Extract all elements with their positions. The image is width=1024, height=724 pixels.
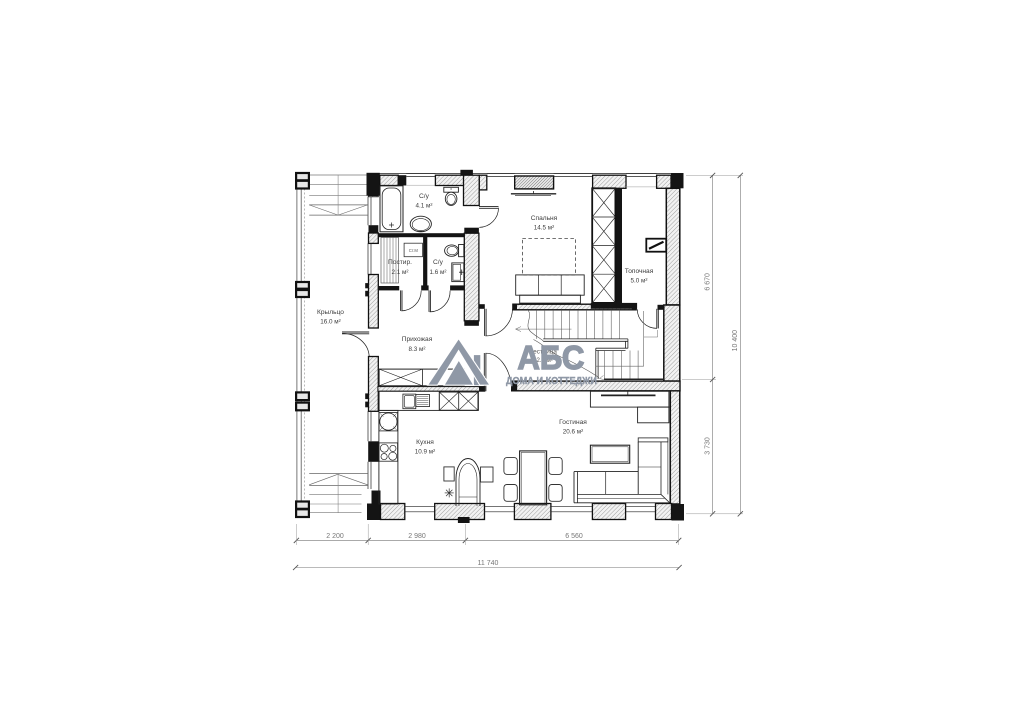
svg-text:Спальня: Спальня: [531, 215, 558, 222]
svg-text:АБС: АБС: [517, 339, 584, 376]
svg-text:4.1 м²: 4.1 м²: [416, 203, 433, 210]
svg-text:ДОМА И КОТТЕДЖИ: ДОМА И КОТТЕДЖИ: [506, 375, 597, 387]
svg-text:1.6 м²: 1.6 м²: [430, 269, 447, 276]
svg-text:Гостиная: Гостиная: [559, 419, 587, 426]
svg-text:Кухня: Кухня: [416, 439, 434, 446]
svg-text:С/у: С/у: [433, 259, 444, 266]
svg-text:5.0 м²: 5.0 м²: [631, 278, 648, 285]
svg-text:Топочная: Топочная: [625, 268, 654, 275]
svg-text:Прихожая: Прихожая: [402, 336, 433, 343]
svg-text:10 400: 10 400: [732, 330, 739, 352]
svg-text:С/у: С/у: [419, 193, 430, 200]
svg-text:Ст.М: Ст.М: [409, 248, 419, 253]
svg-text:2 200: 2 200: [326, 533, 344, 540]
svg-text:14.5 м²: 14.5 м²: [534, 225, 554, 232]
svg-text:6 560: 6 560: [565, 533, 583, 540]
svg-text:2.1 м²: 2.1 м²: [392, 269, 409, 276]
svg-text:10.9 м²: 10.9 м²: [415, 449, 435, 456]
svg-text:2 980: 2 980: [408, 533, 426, 540]
svg-text:16.0 м²: 16.0 м²: [320, 319, 340, 326]
svg-text:6 670: 6 670: [705, 273, 712, 291]
svg-text:Крыльцо: Крыльцо: [317, 309, 344, 316]
svg-text:8.3 м²: 8.3 м²: [409, 346, 426, 353]
svg-text:3 730: 3 730: [705, 437, 712, 455]
svg-text:20.6 м²: 20.6 м²: [563, 429, 583, 436]
svg-text:11 740: 11 740: [478, 560, 499, 567]
svg-text:Постир.: Постир.: [388, 259, 412, 266]
